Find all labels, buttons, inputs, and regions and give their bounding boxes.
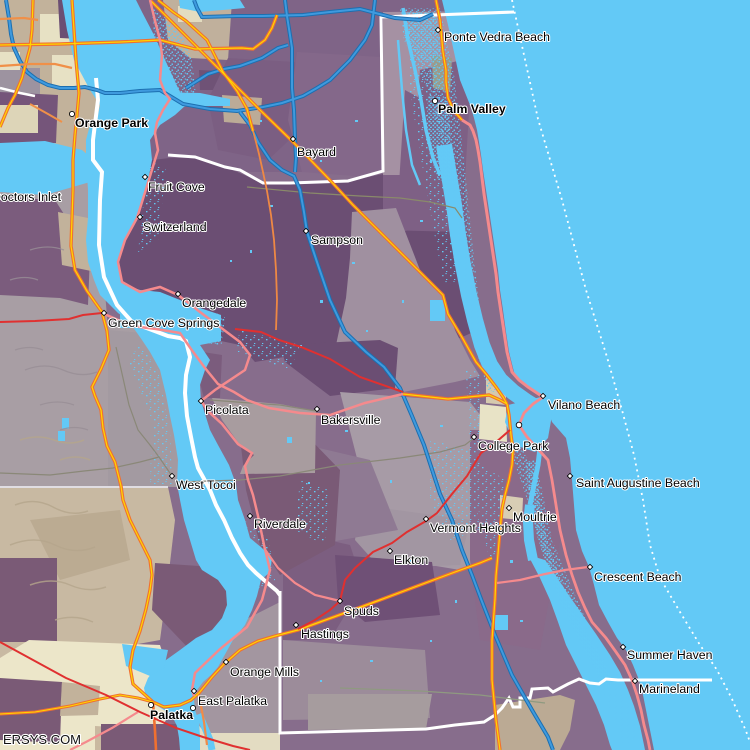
- svg-text:Bakersville: Bakersville: [321, 413, 381, 427]
- svg-text:Ponte Vedra Beach: Ponte Vedra Beach: [444, 30, 550, 44]
- svg-text:Palatka: Palatka: [150, 708, 193, 722]
- svg-text:Spuds: Spuds: [344, 604, 379, 618]
- svg-text:Summer Haven: Summer Haven: [627, 648, 713, 662]
- svg-text:Sampson: Sampson: [311, 233, 363, 247]
- svg-text:Vermont Heights: Vermont Heights: [430, 521, 521, 535]
- svg-text:Fruit Cove: Fruit Cove: [148, 180, 205, 194]
- svg-text:West Tocoi: West Tocoi: [176, 478, 236, 492]
- svg-text:Green Cove Springs: Green Cove Springs: [108, 316, 219, 330]
- svg-text:Hastings: Hastings: [301, 627, 349, 641]
- svg-text:Saint Augustine Beach: Saint Augustine Beach: [576, 476, 700, 490]
- svg-text:ERSYS.COM: ERSYS.COM: [3, 732, 81, 747]
- svg-text:Vilano Beach: Vilano Beach: [548, 398, 620, 412]
- svg-text:Doctors Inlet: Doctors Inlet: [0, 190, 62, 204]
- svg-text:Palm Valley: Palm Valley: [438, 102, 506, 116]
- svg-text:Crescent Beach: Crescent Beach: [594, 570, 682, 584]
- svg-text:College Park: College Park: [478, 439, 549, 453]
- svg-text:Bayard: Bayard: [297, 145, 336, 159]
- svg-text:Elkton: Elkton: [394, 553, 428, 567]
- svg-text:Orange Park: Orange Park: [75, 116, 148, 130]
- svg-text:Riverdale: Riverdale: [254, 517, 306, 531]
- svg-text:East Palatka: East Palatka: [198, 694, 267, 708]
- svg-text:Switzerland: Switzerland: [143, 220, 207, 234]
- svg-text:Picolata: Picolata: [205, 403, 249, 417]
- svg-text:Orange Mills: Orange Mills: [230, 665, 299, 679]
- svg-text:Orangedale: Orangedale: [182, 296, 246, 310]
- svg-text:Marineland: Marineland: [639, 682, 700, 696]
